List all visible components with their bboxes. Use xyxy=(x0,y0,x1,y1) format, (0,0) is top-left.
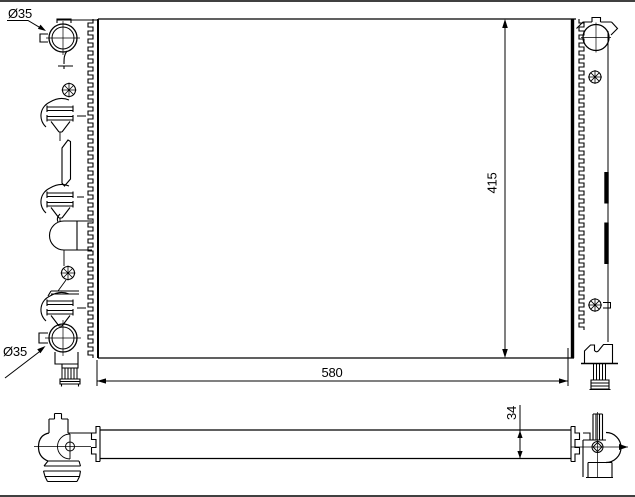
outlet-port xyxy=(39,320,81,356)
bottom-view xyxy=(34,412,628,482)
strip-right-end-plate xyxy=(571,427,580,462)
mount-rail-lower xyxy=(604,223,608,265)
bottom-bracket-right xyxy=(581,345,618,364)
mount-hole-bottom-right xyxy=(588,298,611,312)
arrow-down xyxy=(502,349,508,358)
mount-hole-top-left xyxy=(62,83,77,98)
mounting-clip-3 xyxy=(41,292,73,326)
drawing-svg: 415 580 34 Ø35 Ø35 xyxy=(0,0,635,497)
mounting-clip-1 xyxy=(41,98,73,132)
arrow-down xyxy=(517,451,522,459)
bottom-left-fitting xyxy=(34,414,91,482)
arrow-up xyxy=(517,431,522,439)
radiator-technical-drawing: 415 580 34 Ø35 Ø35 xyxy=(0,0,635,497)
outlet-diameter-label: Ø35 xyxy=(3,344,27,359)
foot-bracket xyxy=(48,291,79,296)
filler-neck xyxy=(581,23,611,53)
inlet-diameter-label: Ø35 xyxy=(8,6,32,21)
page-border xyxy=(0,1,635,496)
clip-connectors xyxy=(58,116,86,308)
side-bracket-bar xyxy=(62,140,71,186)
radiator-core xyxy=(88,19,584,358)
callout-inlet-diameter: Ø35 xyxy=(7,6,46,31)
strip-outline xyxy=(100,430,571,459)
outlet-crosshair xyxy=(45,320,81,356)
leader-arrow xyxy=(38,25,46,31)
mount-rail-upper xyxy=(604,172,608,204)
front-view xyxy=(39,18,618,390)
dimension-depth-34: 34 xyxy=(504,405,523,459)
bottom-right-fitting xyxy=(571,412,628,478)
fitting-body-arc-right xyxy=(606,433,621,463)
width-dim-label: 580 xyxy=(321,365,342,380)
inlet-crosshair xyxy=(46,21,80,55)
filler-neck-bracket xyxy=(577,18,618,36)
depth-dim-label: 34 xyxy=(504,406,519,420)
arrow-right xyxy=(559,378,568,383)
drain-plug-left xyxy=(55,352,80,387)
fitting-body-arc xyxy=(38,433,49,461)
drain-pin-right xyxy=(590,364,611,390)
arrow-left xyxy=(97,378,106,383)
callout-outlet-diameter: Ø35 xyxy=(3,344,46,378)
filler-crosshair xyxy=(581,23,611,53)
dimension-width-580: 580 xyxy=(97,348,568,386)
mount-hole-mid-left xyxy=(61,266,76,281)
height-dim-label: 415 xyxy=(485,172,500,193)
right-crimp-edge xyxy=(579,19,584,330)
tank-dome-boss xyxy=(50,214,93,250)
dimension-height-415: 415 xyxy=(485,19,508,358)
mount-hole-top-right xyxy=(588,70,602,84)
hose-barb-ribs xyxy=(44,461,81,482)
left-crimp-edge xyxy=(88,19,93,358)
strip-left-end-plate xyxy=(92,427,101,462)
arrow-up xyxy=(502,19,508,28)
mounting-clip-2 xyxy=(41,184,73,218)
